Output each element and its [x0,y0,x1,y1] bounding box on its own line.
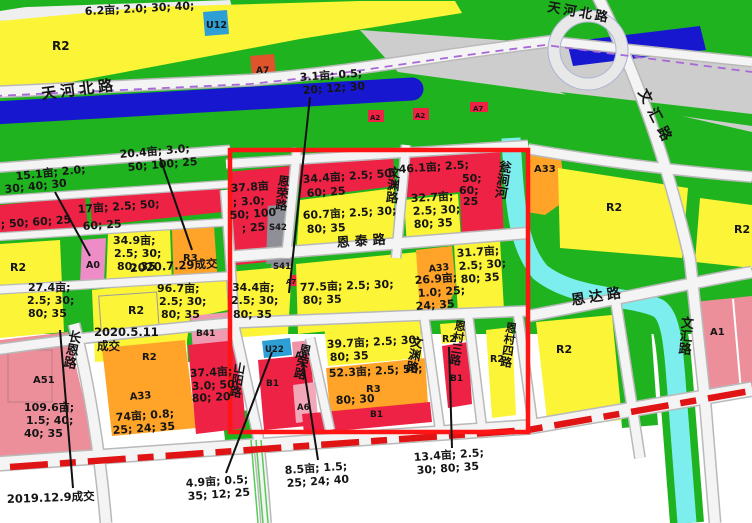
label-a7-top: A7 [256,66,269,76]
label-a33-sw: A33 [129,390,152,403]
ann-349mu-2: 2.5; 30; [114,247,161,260]
label-a6-lower: A6 [297,403,310,413]
ann-317mu-3: 80; 35 [460,270,500,286]
label-a51: A51 [33,375,55,386]
ann-378mu-4: ; 25 [241,220,265,235]
ann-274mu-2: 2.5; 30; [27,294,74,307]
ann-17mu-2: 60; 25 [82,217,122,233]
ann-775mu-2: 80; 35 [303,293,342,307]
label-r2-nw: R2 [52,39,70,53]
label-a7-center: A7 [286,278,296,286]
label-b41: B41 [196,329,215,339]
ann-344s-1: 34.4亩; [232,280,275,294]
ann-374mu-3: 80; 20 [191,390,231,405]
label-r2-mid: R2 [128,304,144,317]
label-s41: S41 [273,262,291,272]
zoning-map: 天河北路 天河北路 文汇路 文汇路 瓮涧河 恩泰路 恩达路 恩荣路 恩荣路 文渊… [0,0,752,523]
ann-397mu-2: 80; 35 [329,349,368,364]
label-b1-east: B1 [450,374,463,384]
label-r2-far-east: R2 [734,223,750,236]
ann-1096mu-2: 1.5; 40; [26,414,73,427]
ann-967mu-3: 80; 35 [161,308,200,321]
ann-327mu-3: 80; 35 [413,216,452,231]
label-r2-mid2: R2 [142,352,157,363]
label-r2-small-2: R2 [490,354,504,365]
label-r2-east: R2 [606,201,622,214]
ann-344s-2: 2.5; 30; [231,294,278,307]
label-r2-west: R2 [10,261,26,274]
ann-269mu-3: 24; 35 [415,297,455,313]
ann-461mu-4: 25 [463,195,478,208]
label-b1-strip: B1 [370,410,383,420]
label-s42: S42 [269,223,287,233]
ann-607mu-2: 80; 35 [306,221,345,236]
zoning-map-screenshot: 天河北路 天河北路 文汇路 文汇路 瓮涧河 恩泰路 恩达路 恩荣路 恩荣路 文渊… [0,0,752,523]
label-r2-se: R2 [556,343,572,356]
deal-20200511-line2: 成交 [97,339,120,353]
label-a33-east: A33 [534,164,556,175]
label-a7-small: A7 [473,105,483,113]
label-a2-1: A2 [370,114,380,122]
ann-967mu-1: 96.7亩; [157,281,200,295]
ann-344s-3: 80; 35 [233,308,272,321]
label-u12: U12 [206,20,227,31]
ann-1096mu-3: 40; 35 [24,427,63,440]
ann-967mu-2: 2.5; 30; [159,295,206,308]
label-r2-small-1: R2 [442,334,456,345]
ann-327mu-2: 2.5; 30; [412,203,460,218]
ann-274mu-3: 80; 35 [28,307,67,320]
label-a6-upper: A6 [295,351,308,361]
label-a0: A0 [86,260,100,271]
ann-523mu-2: 80; 30 [335,392,375,407]
ann-344n-2: 60; 25 [306,184,346,200]
label-b1-west: B1 [266,379,279,389]
ann-1096mu-1: 109.6亩; [24,400,74,414]
deal-20200511-line1: 2020.5.11 [94,325,159,339]
label-u22: U22 [265,345,284,355]
label-a1: A1 [710,327,725,338]
ann-378mu-1: 37.8亩 [230,178,269,195]
ann-349mu-1: 34.9亩; [113,233,156,247]
label-a2-2: A2 [415,112,425,120]
ann-274mu-1: 27.4亩; [28,280,71,294]
